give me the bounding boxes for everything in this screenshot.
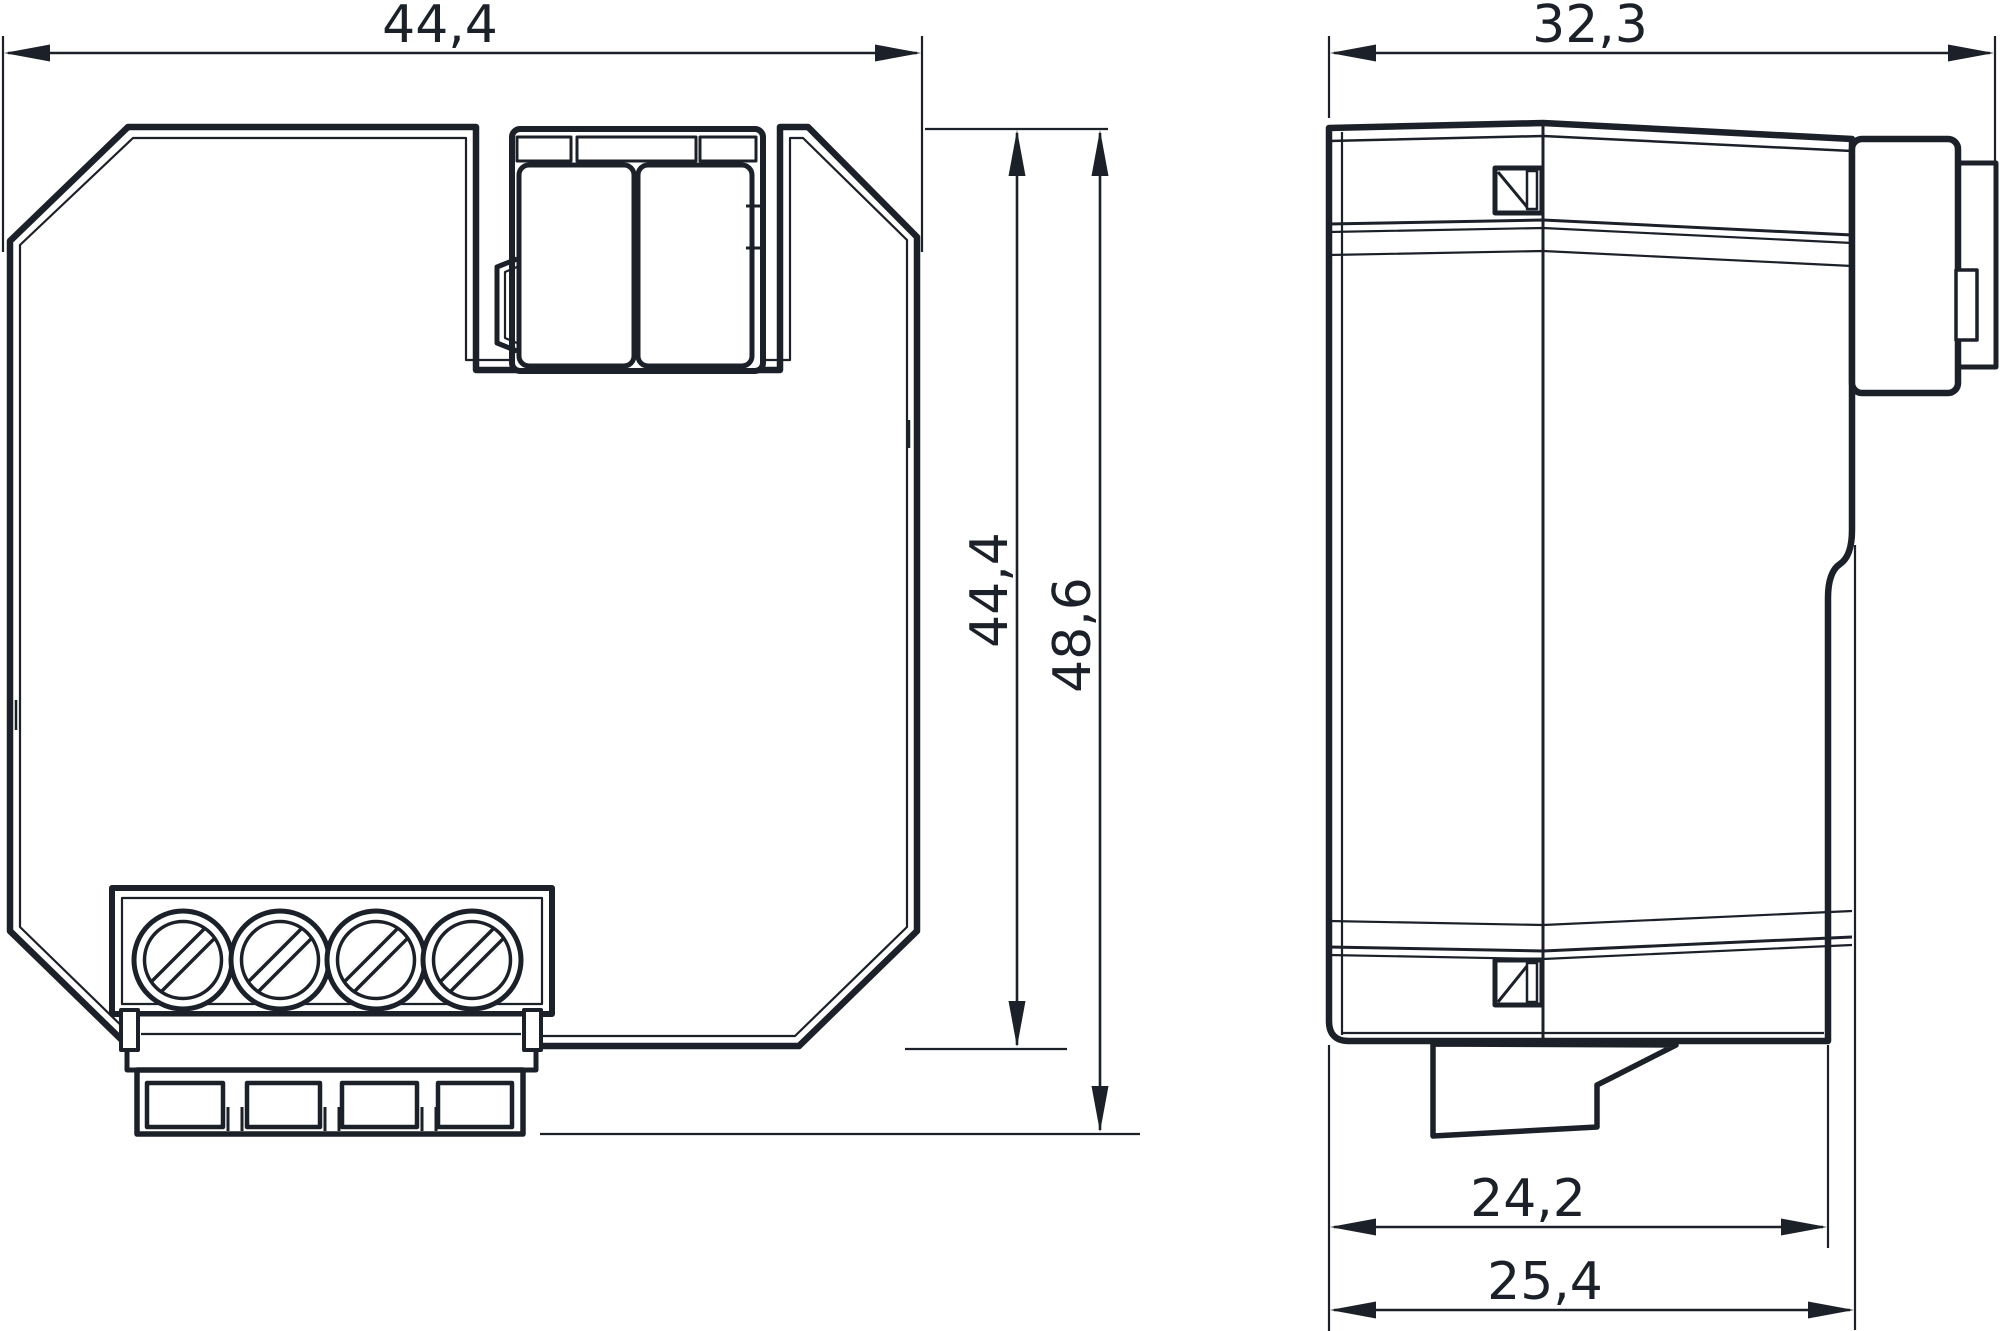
screw-outer-ring xyxy=(327,911,425,1009)
dimension-label-side-flange-depth: 25,4 xyxy=(1487,1252,1603,1312)
dimension-label-side-body-depth: 24,2 xyxy=(1470,1169,1586,1229)
terminal-side-tab-left xyxy=(121,1010,138,1050)
front-view xyxy=(10,127,917,1134)
side-connector-block xyxy=(1852,139,1958,393)
terminal-screw-1 xyxy=(134,911,232,1009)
connector-door-left xyxy=(519,165,634,366)
side-view xyxy=(1329,123,1996,1136)
wire-opening-2 xyxy=(247,1083,320,1127)
terminal-flange xyxy=(127,1014,536,1070)
arrowhead-up xyxy=(1009,130,1026,176)
arrowhead-down xyxy=(1009,1001,1026,1047)
terminal-side-tab-right xyxy=(524,1010,541,1050)
wire-opening-1 xyxy=(147,1083,223,1127)
screw-terminal-block xyxy=(112,888,552,1134)
connector-door-right xyxy=(638,165,752,366)
arrowhead-right xyxy=(1948,45,1994,62)
side-protrusion-slot xyxy=(1956,270,1977,340)
arrowhead-left xyxy=(1330,1219,1376,1236)
side-top-band-line xyxy=(1329,220,1852,235)
dimension-label-front-total-height: 48,6 xyxy=(1043,577,1103,693)
bus-connector-block xyxy=(497,129,763,371)
terminal-screw-3 xyxy=(327,911,425,1009)
dimension-label-front-body-height: 44,4 xyxy=(960,532,1020,648)
terminal-screw-2 xyxy=(231,911,329,1009)
dimension-label-side-total-depth: 32,3 xyxy=(1532,0,1648,55)
arrowhead-right xyxy=(1781,1219,1827,1236)
wire-opening-3 xyxy=(342,1083,417,1127)
technical-drawing-page: 44,4 44,4 48,6 xyxy=(0,0,2000,1331)
arrowhead-down xyxy=(1092,1086,1109,1132)
screw-outer-ring xyxy=(423,911,521,1009)
arrowhead-up xyxy=(1092,130,1109,176)
dimension-label-front-width: 44,4 xyxy=(382,0,498,55)
terminal-screw-4 xyxy=(423,911,521,1009)
screw-outer-ring xyxy=(134,911,232,1009)
arrowhead-left xyxy=(1330,45,1376,62)
side-top-band-line-3 xyxy=(1329,251,1852,266)
clip-symbol-top xyxy=(1495,168,1542,213)
arrowhead-right xyxy=(875,45,921,62)
arrowhead-left xyxy=(1330,1302,1376,1319)
clip-symbol-bottom xyxy=(1495,960,1542,1005)
side-top-inner-line xyxy=(1329,136,1852,151)
wire-opening-4 xyxy=(438,1083,512,1127)
side-bottom-band-line-3 xyxy=(1329,911,1852,925)
screw-outer-ring xyxy=(231,911,329,1009)
arrowhead-right xyxy=(1808,1302,1854,1319)
arrowhead-left xyxy=(4,45,50,62)
dimensional-drawing: 44,4 44,4 48,6 xyxy=(0,0,2000,1331)
side-housing-outline xyxy=(1329,123,1852,1041)
side-latch-hook xyxy=(1433,1044,1676,1136)
